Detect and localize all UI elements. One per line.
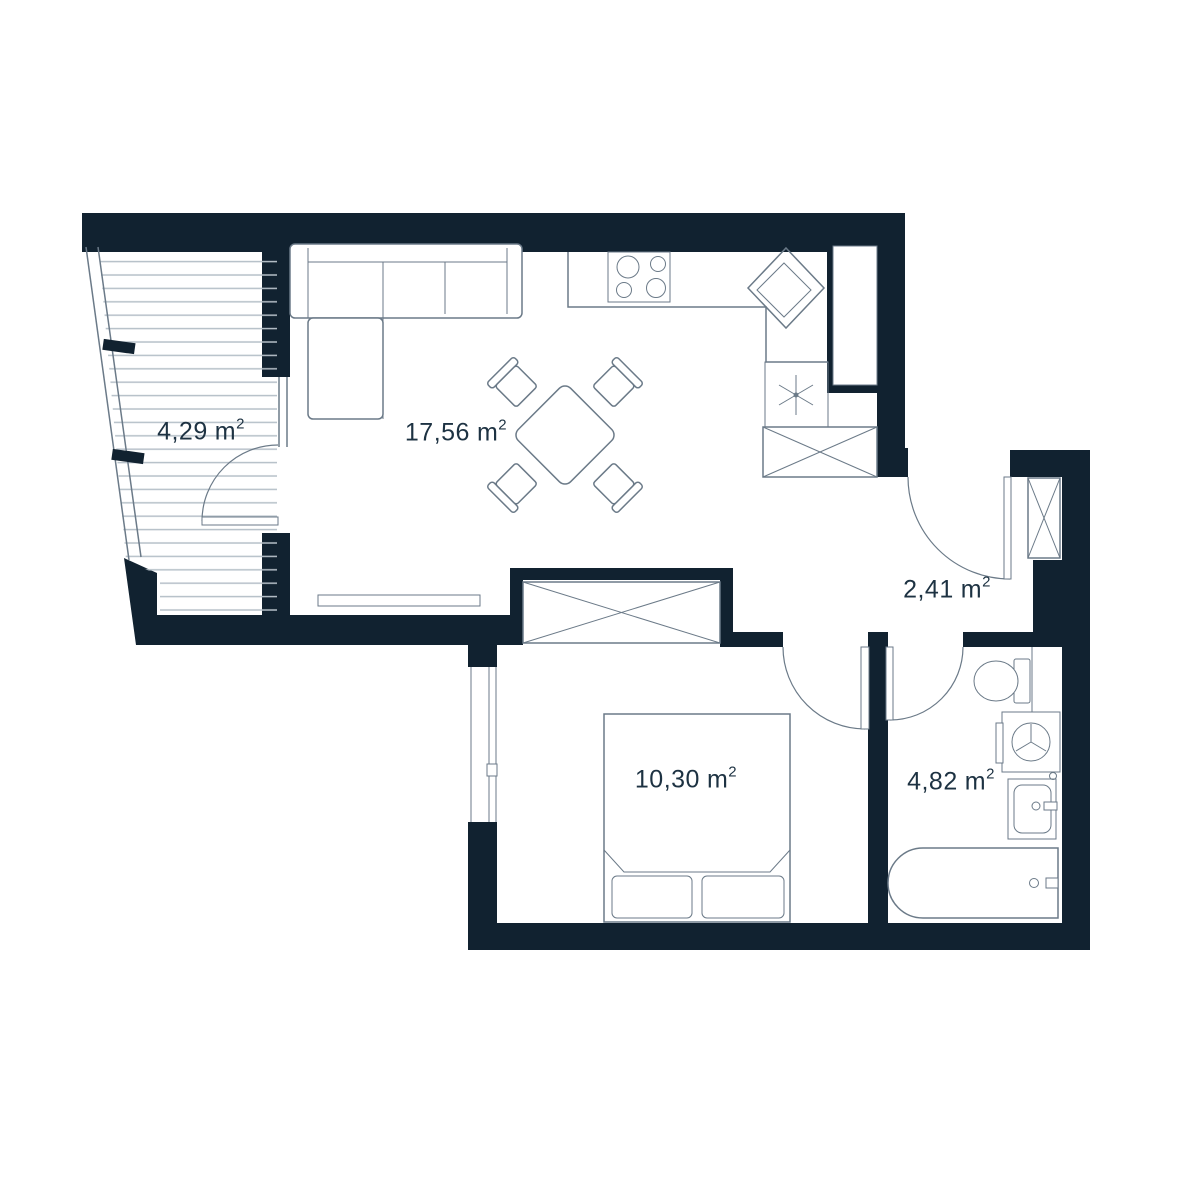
sofa — [290, 244, 522, 318]
washbasin-tap — [1044, 802, 1057, 810]
area-unit: m — [965, 768, 986, 796]
area-value: 17,56 — [405, 419, 470, 447]
washing-machine-drawer — [996, 723, 1003, 763]
toilet-bowl — [974, 661, 1018, 701]
wall-segment — [877, 448, 908, 477]
wall-segment — [468, 822, 497, 950]
boiler-symbol — [779, 375, 813, 415]
room-label-balcony: 4,29m2 — [157, 418, 245, 447]
sofa-chaise — [308, 318, 383, 419]
balcony-door-leaf — [202, 517, 278, 525]
wall-segment — [720, 632, 783, 647]
area-exponent: 2 — [986, 765, 995, 782]
wall-segment — [1010, 450, 1090, 477]
area-unit: m — [215, 418, 236, 446]
wall-segment — [510, 568, 523, 645]
area-value: 4,82 — [907, 768, 958, 796]
bedroom-door-leaf — [861, 647, 869, 729]
dining-table — [513, 383, 618, 488]
entrance-door-leaf — [1004, 477, 1011, 579]
bedroom-door-arc — [783, 647, 865, 729]
area-value: 10,30 — [635, 766, 700, 794]
room-label-living-room: 17,56m2 — [405, 419, 507, 448]
area-value: 4,29 — [157, 418, 208, 446]
room-label-hallway: 2,41m2 — [903, 576, 991, 605]
wall-segment — [510, 568, 733, 580]
wall-segment — [468, 615, 497, 667]
room-label-bedroom: 10,30m2 — [635, 766, 737, 795]
area-exponent: 2 — [728, 763, 737, 780]
area-unit: m — [961, 576, 982, 604]
bathroom-door-arc — [890, 647, 963, 720]
entrance-door-arc — [908, 477, 1010, 579]
washbasin-drain — [1050, 773, 1057, 780]
area-value: 2,41 — [903, 576, 954, 604]
wall-segment — [1062, 477, 1090, 950]
wall-segment — [468, 923, 1090, 950]
area-exponent: 2 — [498, 416, 507, 433]
bathtub-tap — [1046, 878, 1058, 888]
bedroom — [471, 582, 869, 922]
floor-plan-drawing — [0, 0, 1200, 1200]
area-exponent: 2 — [982, 573, 991, 590]
kitchen-sink-basin — [757, 263, 811, 317]
wall-segment — [963, 632, 1062, 647]
bathtub — [888, 848, 1058, 918]
wall-segment — [1033, 560, 1062, 633]
tv-bench — [318, 595, 480, 606]
area-unit: m — [707, 766, 728, 794]
bedroom-window-latch — [487, 764, 497, 776]
pillow — [612, 876, 692, 918]
living-room-kitchen — [290, 244, 877, 606]
bathroom-door-leaf — [886, 647, 893, 720]
wall-segment — [868, 632, 888, 950]
wall-segment — [877, 252, 905, 450]
area-unit: m — [477, 419, 498, 447]
wall-segment — [827, 385, 880, 393]
pillow — [702, 876, 784, 918]
area-exponent: 2 — [236, 415, 245, 432]
tall-cabinet — [833, 246, 877, 385]
room-label-bathroom: 4,82m2 — [907, 768, 995, 797]
floor-plan: 4,29m2 17,56m2 2,41m2 10,30m2 4,82m2 — [0, 0, 1200, 1200]
stove — [608, 252, 670, 302]
